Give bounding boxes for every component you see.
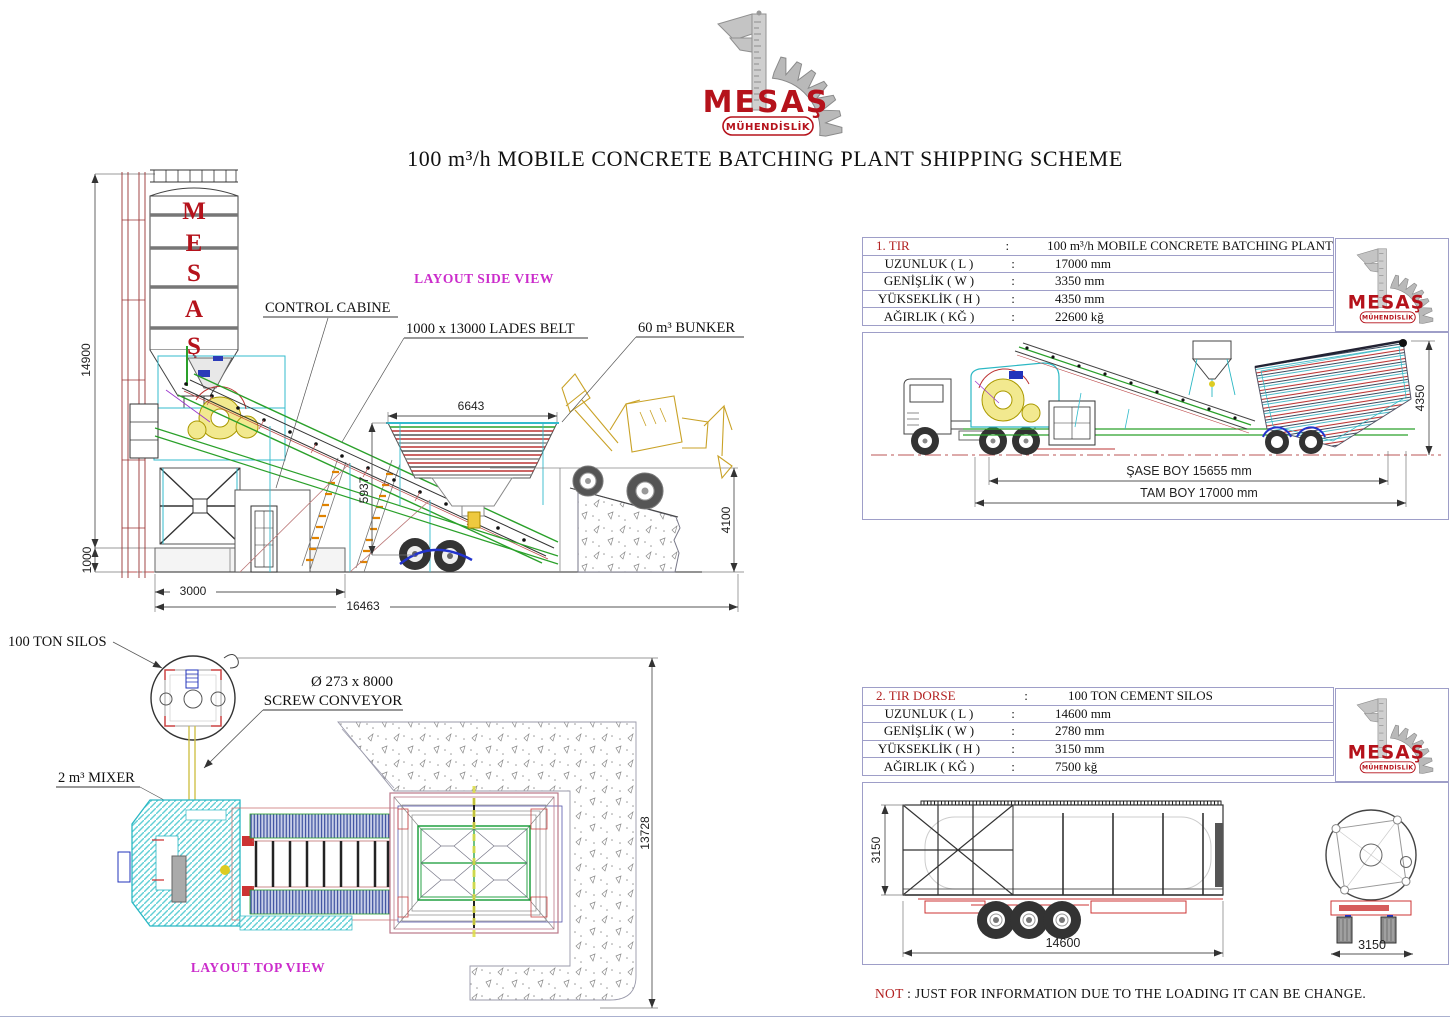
svg-text:60 m³ BUNKER: 60 m³ BUNKER bbox=[638, 320, 735, 336]
svg-text:Ø 273 x 8000: Ø 273 x 8000 bbox=[311, 674, 393, 690]
support-frame bbox=[160, 468, 240, 544]
row-label: UZUNLUK ( L ) bbox=[863, 706, 995, 722]
shipment2-drawing-box: 3150 14600 bbox=[862, 782, 1449, 965]
svg-text:E: E bbox=[186, 230, 203, 257]
svg-text:1000: 1000 bbox=[80, 546, 94, 573]
mixer-platform bbox=[130, 346, 285, 460]
svg-text:6643: 6643 bbox=[458, 399, 485, 413]
dim-silo-height: 14900 bbox=[79, 174, 155, 548]
layout-side-view-drawing: 14900 1000 M E S A Ş bbox=[70, 160, 760, 620]
svg-text:ŞASE BOY 15655 mm: ŞASE BOY 15655 mm bbox=[1126, 464, 1252, 478]
row-value: 7500 kğ bbox=[1031, 759, 1333, 775]
row-label: 1. TIR bbox=[863, 238, 992, 254]
side-view-caption: LAYOUT SIDE VIEW bbox=[414, 271, 554, 286]
dim-trailer-height: 3150 bbox=[869, 805, 905, 895]
shipment1-spec-table: 1. TIR : 100 m³/h MOBILE CONCRETE BATCHI… bbox=[862, 237, 1334, 326]
svg-text:3000: 3000 bbox=[180, 584, 207, 598]
row-label: GENİŞLİK ( W ) bbox=[863, 273, 995, 289]
shipping-scheme-sheet: MESAŞ MÜHENDİSLİK 100 m³/h MOBILE CONCRE… bbox=[0, 0, 1450, 1028]
svg-text:1000 x 13000 LADES BELT: 1000 x 13000 LADES BELT bbox=[406, 321, 575, 337]
row-value: 22600 kğ bbox=[1031, 309, 1333, 325]
table-row: UZUNLUK ( L ) : 17000 mm bbox=[863, 256, 1333, 274]
dim-base-length: 3000 bbox=[155, 574, 345, 612]
company-logo-small: MESAŞ MÜHENDİSLİK bbox=[1340, 695, 1444, 776]
callout-bunker: 60 m³ BUNKER bbox=[562, 320, 744, 422]
svg-text:4100: 4100 bbox=[719, 506, 733, 533]
row-label: GENİŞLİK ( W ) bbox=[863, 723, 995, 739]
row-label: YÜKSEKLİK ( H ) bbox=[863, 291, 995, 307]
svg-text:2 m³ MIXER: 2 m³ MIXER bbox=[58, 770, 135, 786]
svg-text:14600: 14600 bbox=[1046, 936, 1081, 950]
row-label: 2. TIR DORSE bbox=[863, 688, 1008, 704]
top-view-caption: LAYOUT TOP VIEW bbox=[191, 960, 325, 975]
row-value: 3150 mm bbox=[1031, 741, 1333, 757]
table-row: GENİŞLİK ( W ) : 3350 mm bbox=[863, 273, 1333, 291]
dim-total-length: 16463 bbox=[155, 574, 738, 613]
svg-text:M: M bbox=[182, 198, 206, 225]
dim-chassis-length: ŞASE BOY 15655 mm bbox=[989, 451, 1388, 485]
table-row: YÜKSEKLİK ( H ) : 4350 mm bbox=[863, 291, 1333, 309]
trailer-drawing: 3150 14600 bbox=[863, 783, 1448, 964]
note-text: : JUST FOR INFORMATION DUE TO THE LOADIN… bbox=[907, 986, 1366, 1001]
row-label: AĞIRLIK ( KĞ ) bbox=[863, 309, 995, 325]
layout-top-view-drawing: 100 TON SILOS Ø 273 x 8000 SCREW CONVEYO… bbox=[0, 628, 680, 1023]
svg-text:5937: 5937 bbox=[357, 476, 371, 503]
svg-text:13728: 13728 bbox=[638, 816, 652, 850]
row-value: 100 m³/h MOBILE CONCRETE BATCHING PLANT bbox=[1023, 238, 1333, 254]
svg-text:MESAŞ: MESAŞ bbox=[1348, 742, 1426, 763]
control-cabin bbox=[235, 490, 310, 572]
shipment1-logo-box: MESAŞ MÜHENDİSLİK bbox=[1335, 238, 1449, 332]
trailer-side-view bbox=[903, 801, 1223, 939]
svg-text:A: A bbox=[185, 296, 203, 323]
sheet-bottom-border bbox=[0, 1016, 1450, 1017]
svg-text:MESAŞ: MESAŞ bbox=[1348, 292, 1426, 313]
table-row: AĞIRLIK ( KĞ ) : 22600 kğ bbox=[863, 308, 1333, 326]
dim-bunker-width: 6643 bbox=[388, 399, 557, 422]
shipment2-spec-table: 2. TIR DORSE : 100 TON CEMENT SILOS UZUN… bbox=[862, 687, 1334, 776]
svg-text:TAM BOY 17000 mm: TAM BOY 17000 mm bbox=[1140, 486, 1258, 500]
dim-base-height: 1000 bbox=[80, 546, 155, 573]
truck1-drawing: 4350 ŞASE BOY 15655 mm TAM BOY 17000 mm bbox=[863, 333, 1448, 519]
row-value: 2780 mm bbox=[1031, 723, 1333, 739]
trailer-rear-view bbox=[1326, 810, 1416, 943]
company-logo-small: MESAŞ MÜHENDİSLİK bbox=[1340, 245, 1444, 326]
row-label: YÜKSEKLİK ( H ) bbox=[863, 741, 995, 757]
mixer-plan bbox=[118, 800, 254, 926]
table-row: GENİŞLİK ( W ) : 2780 mm bbox=[863, 723, 1333, 741]
row-value: 14600 mm bbox=[1031, 706, 1333, 722]
dim-truck1-height: 4350 bbox=[1411, 341, 1435, 455]
row-value: 4350 mm bbox=[1031, 291, 1333, 307]
svg-text:SCREW CONVEYOR: SCREW CONVEYOR bbox=[264, 693, 403, 709]
dim-ramp-height: 4100 bbox=[719, 468, 734, 572]
svg-text:14900: 14900 bbox=[79, 343, 93, 377]
company-logo: MESAŞ MÜHENDİSLİK bbox=[690, 8, 860, 140]
note-prefix: NOT bbox=[875, 986, 903, 1001]
shipment1-drawing-box: 4350 ŞASE BOY 15655 mm TAM BOY 17000 mm bbox=[862, 332, 1449, 520]
callout-silos: 100 TON SILOS bbox=[8, 634, 162, 668]
svg-text:CONTROL CABINE: CONTROL CABINE bbox=[265, 300, 391, 316]
footer-note: NOT : JUST FOR INFORMATION DUE TO THE LO… bbox=[875, 986, 1366, 1002]
table-row: AĞIRLIK ( KĞ ) : 7500 kğ bbox=[863, 758, 1333, 776]
table-row: UZUNLUK ( L ) : 14600 mm bbox=[863, 706, 1333, 724]
dim-total-length: TAM BOY 17000 mm bbox=[975, 451, 1406, 507]
table-row: YÜKSEKLİK ( H ) : 3150 mm bbox=[863, 741, 1333, 759]
table-row: 1. TIR : 100 m³/h MOBILE CONCRETE BATCHI… bbox=[863, 238, 1333, 256]
row-value: 100 TON CEMENT SILOS bbox=[1044, 688, 1333, 704]
row-label: AĞIRLIK ( KĞ ) bbox=[863, 759, 995, 775]
svg-text:4350: 4350 bbox=[1413, 384, 1427, 411]
svg-text:S: S bbox=[187, 260, 201, 287]
logo-name: MESAŞ bbox=[703, 85, 830, 120]
backhoe-loader bbox=[562, 374, 732, 509]
conveyor-plan bbox=[232, 808, 420, 930]
svg-text:3150: 3150 bbox=[869, 836, 883, 863]
row-value: 17000 mm bbox=[1031, 256, 1333, 272]
table-row: 2. TIR DORSE : 100 TON CEMENT SILOS bbox=[863, 688, 1333, 706]
svg-text:16463: 16463 bbox=[346, 599, 380, 613]
bunker-plan bbox=[390, 786, 562, 940]
svg-text:3150: 3150 bbox=[1358, 938, 1386, 952]
row-value: 3350 mm bbox=[1031, 273, 1333, 289]
callout-mixer: 2 m³ MIXER bbox=[56, 770, 164, 800]
row-label: UZUNLUK ( L ) bbox=[863, 256, 995, 272]
shipment2-logo-box: MESAŞ MÜHENDİSLİK bbox=[1335, 688, 1449, 782]
logo-subtitle: MÜHENDİSLİK bbox=[726, 119, 811, 133]
svg-text:100 TON SILOS: 100 TON SILOS bbox=[8, 634, 107, 650]
